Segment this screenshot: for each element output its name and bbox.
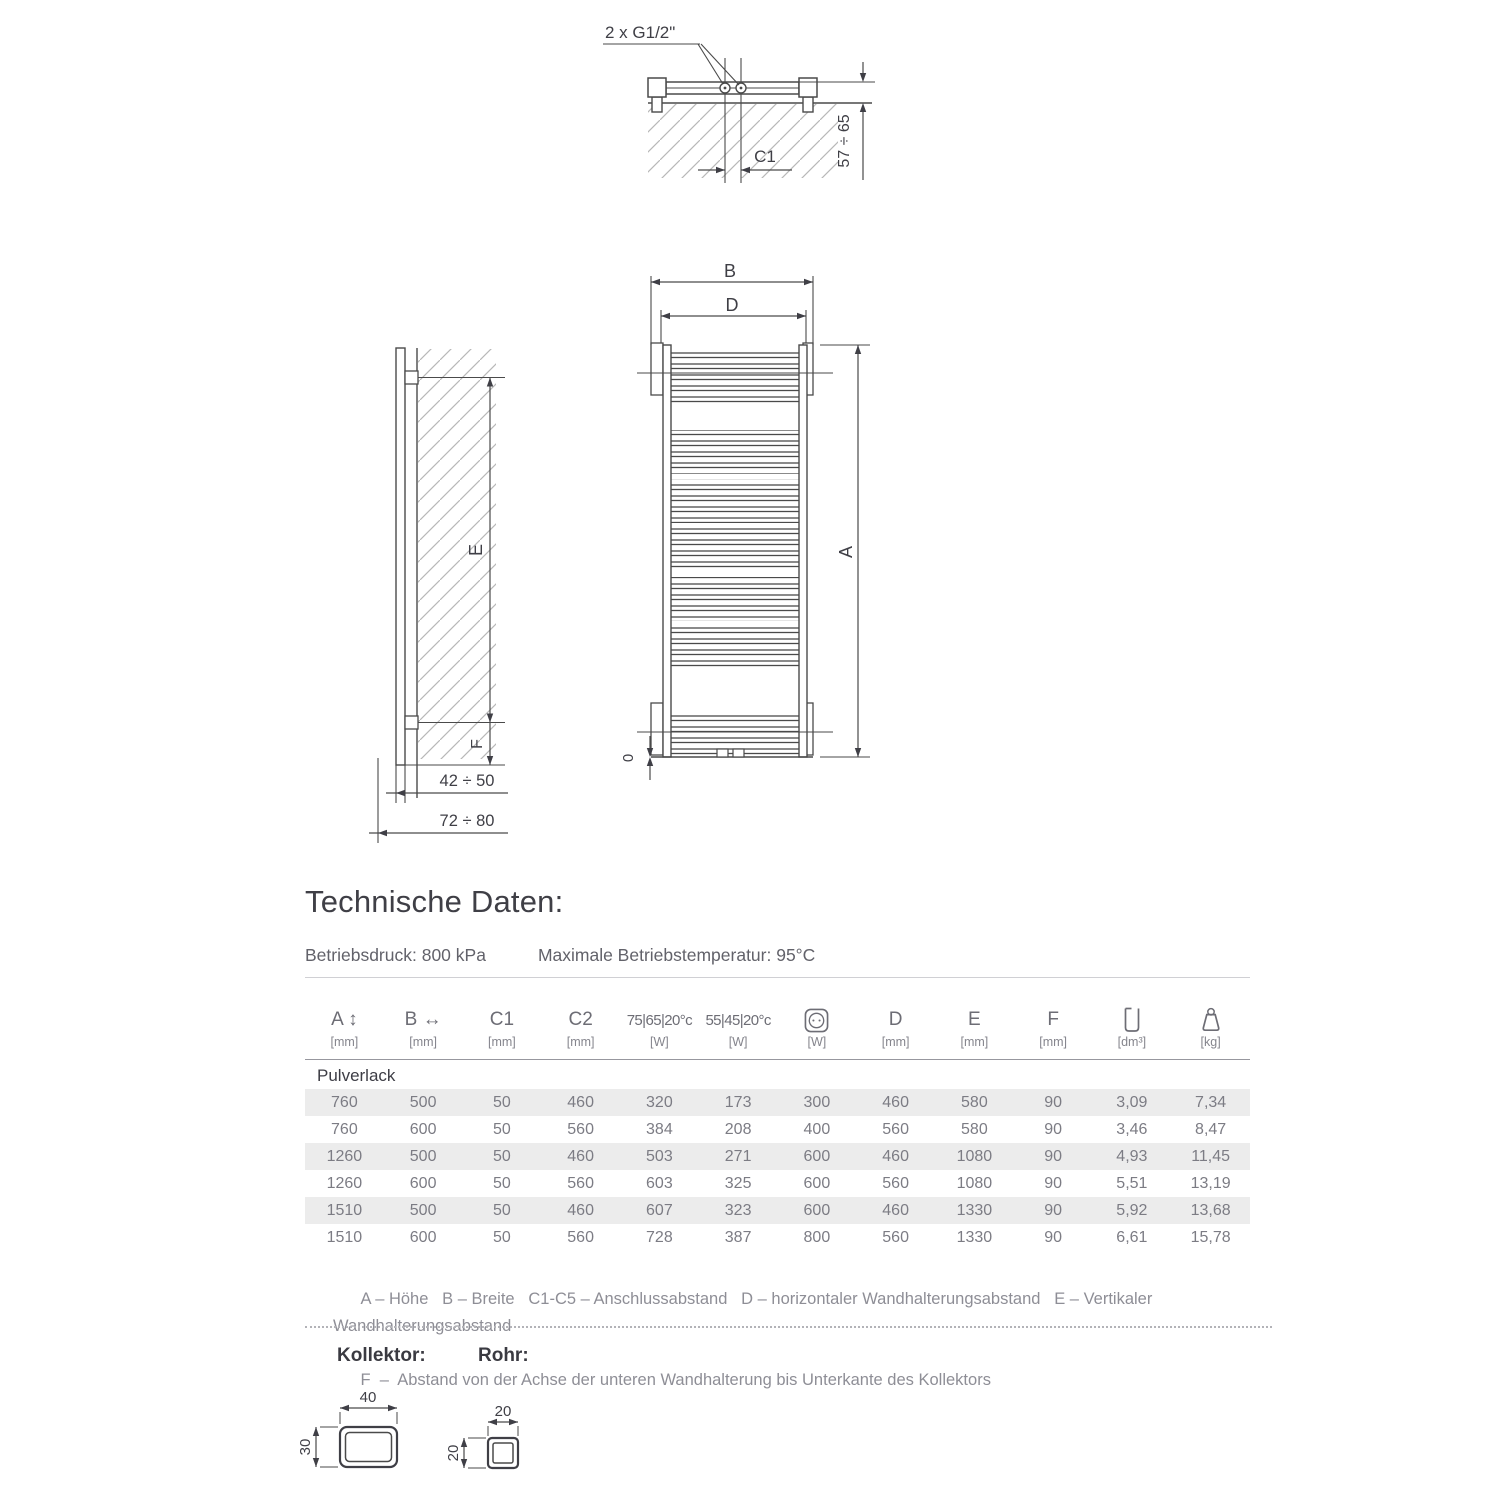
table-cell: 460 (541, 1148, 620, 1166)
datasheet-page: 2 x G1/2" C1 57 ÷ 65 (0, 0, 1500, 1500)
table-cell: 500 (384, 1094, 463, 1112)
table-cell: 460 (856, 1202, 935, 1220)
table-cell: 503 (620, 1148, 699, 1166)
table-cell: 384 (620, 1121, 699, 1139)
table-header-row: A ↕ [mm] B ↔ [mm] C1 [mm] C2 [mm] 75|65|… (305, 995, 1250, 1059)
table-cell: 600 (778, 1175, 857, 1193)
finish-group-label: Pulverlack (305, 1060, 1250, 1089)
table-cell: 1260 (305, 1148, 384, 1166)
table-cell: 760 (305, 1121, 384, 1139)
table-cell: 208 (699, 1121, 778, 1139)
c1-dim-label: C1 (754, 147, 776, 166)
unit-label: [kg] (1171, 1035, 1250, 1049)
col-header-e: E [mm] (935, 1007, 1014, 1049)
table-row: 1510 600 50 560 728 387 800 560 1330 90 … (305, 1224, 1250, 1251)
col-header-d: D [mm] (856, 1007, 935, 1049)
col-header-power-75: 75|65|20°c [W] (620, 1007, 699, 1049)
table-cell: 7,34 (1171, 1094, 1250, 1112)
table-cell: 3,46 (1093, 1121, 1172, 1139)
rohr-profile-drawing: 20 20 (445, 1403, 518, 1468)
table-row: 1260 600 50 560 603 325 600 560 1080 90 … (305, 1170, 1250, 1197)
unit-label: [mm] (305, 1035, 384, 1049)
table-cell: 13,68 (1171, 1202, 1250, 1220)
table-cell: 560 (541, 1121, 620, 1139)
unit-label: [mm] (463, 1035, 542, 1049)
table-cell: 5,92 (1093, 1202, 1172, 1220)
table-cell: 600 (778, 1202, 857, 1220)
rohr-label: Rohr: (478, 1345, 529, 1367)
connection-size-label: 2 x G1/2" (605, 23, 675, 42)
table-row: 760 500 50 460 320 173 300 460 580 90 3,… (305, 1089, 1250, 1116)
col-header-electric-power: [W] (778, 1007, 857, 1049)
depth-dim2-label: 72 ÷ 80 (440, 812, 495, 830)
table-cell: 607 (620, 1202, 699, 1220)
col-header-f: F [mm] (1014, 1007, 1093, 1049)
width-symbol: B ↔ (384, 1007, 463, 1033)
unit-label: [mm] (384, 1035, 463, 1049)
table-cell: 500 (384, 1202, 463, 1220)
max-temperature: Maximale Betriebstemperatur: 95°C (538, 945, 815, 966)
temp-55-45-20-label: 55|45|20°c (699, 1007, 778, 1033)
rohr-height-label: 20 (445, 1445, 462, 1462)
power-socket-icon (778, 1007, 857, 1033)
col-header-height: A ↕ [mm] (305, 1007, 384, 1049)
technical-data-table: A ↕ [mm] B ↔ [mm] C1 [mm] C2 [mm] 75|65|… (305, 995, 1250, 1421)
col-header-weight: [kg] (1171, 1007, 1250, 1049)
table-cell: 50 (463, 1121, 542, 1139)
table-row: 1260 500 50 460 503 271 600 460 1080 90 … (305, 1143, 1250, 1170)
operating-pressure: Betriebsdruck: 800 kPa (305, 945, 486, 966)
table-cell: 50 (463, 1094, 542, 1112)
table-cell: 580 (935, 1094, 1014, 1112)
b-dim-label: B (724, 261, 736, 281)
table-cell: 90 (1014, 1094, 1093, 1112)
table-cell: 3,09 (1093, 1094, 1172, 1112)
table-cell: 90 (1014, 1202, 1093, 1220)
table-row: 1510 500 50 460 607 323 600 460 1330 90 … (305, 1197, 1250, 1224)
table-cell: 1080 (935, 1148, 1014, 1166)
zero-dim-label: 0 (620, 754, 637, 762)
table-cell: 90 (1014, 1229, 1093, 1247)
table-cell: 6,61 (1093, 1229, 1172, 1247)
f-symbol: F (1014, 1007, 1093, 1033)
kollektor-profile-drawing: 40 30 (297, 1389, 397, 1467)
unit-label: [dm³] (1093, 1035, 1172, 1049)
c2-symbol: C2 (541, 1007, 620, 1033)
table-cell: 460 (856, 1148, 935, 1166)
table-cell: 600 (384, 1121, 463, 1139)
table-cell: 460 (541, 1094, 620, 1112)
kollektor-label: Kollektor: (337, 1345, 426, 1367)
table-cell: 1330 (935, 1229, 1014, 1247)
table-cell: 800 (778, 1229, 857, 1247)
side-view-drawing: E F 42 ÷ 50 72 ÷ 80 (369, 348, 508, 843)
table-cell: 600 (384, 1229, 463, 1247)
table-cell: 50 (463, 1148, 542, 1166)
dotted-divider (305, 1326, 1272, 1328)
table-cell: 50 (463, 1202, 542, 1220)
weight-icon (1171, 1007, 1250, 1033)
divider (305, 977, 1250, 978)
table-cell: 90 (1014, 1121, 1093, 1139)
table-cell: 90 (1014, 1148, 1093, 1166)
table-cell: 50 (463, 1229, 542, 1247)
table-cell: 1510 (305, 1229, 384, 1247)
legend-line-1: A – Höhe B – Breite C1-C5 – Anschlussabs… (333, 1290, 1157, 1335)
table-cell: 560 (856, 1175, 935, 1193)
table-row: 760 600 50 560 384 208 400 560 580 90 3,… (305, 1116, 1250, 1143)
kollektor-height-label: 30 (297, 1439, 314, 1456)
d-symbol: D (856, 1007, 935, 1033)
operating-specs: Betriebsdruck: 800 kPa Maximale Betriebs… (305, 945, 815, 966)
table-cell: 603 (620, 1175, 699, 1193)
unit-label: [mm] (935, 1035, 1014, 1049)
unit-label: [W] (699, 1035, 778, 1049)
table-cell: 560 (856, 1121, 935, 1139)
table-cell: 15,78 (1171, 1229, 1250, 1247)
table-cell: 500 (384, 1148, 463, 1166)
table-cell: 600 (778, 1148, 857, 1166)
table-cell: 173 (699, 1094, 778, 1112)
table-cell: 5,51 (1093, 1175, 1172, 1193)
wall-distance-label: 57 ÷ 65 (836, 114, 853, 167)
e-symbol: E (935, 1007, 1014, 1033)
kollektor-width-label: 40 (360, 1389, 377, 1406)
table-cell: 460 (856, 1094, 935, 1112)
table-cell: 1260 (305, 1175, 384, 1193)
table-cell: 1330 (935, 1202, 1014, 1220)
table-cell: 580 (935, 1121, 1014, 1139)
table-cell: 760 (305, 1094, 384, 1112)
depth-dim1-label: 42 ÷ 50 (440, 772, 495, 790)
col-header-c2: C2 [mm] (541, 1007, 620, 1049)
profile-drawings: 40 30 20 20 (280, 1380, 550, 1490)
col-header-width: B ↔ [mm] (384, 1007, 463, 1049)
table-cell: 11,45 (1171, 1148, 1250, 1166)
unit-label: [mm] (541, 1035, 620, 1049)
f-dim-label: F (469, 739, 486, 749)
table-cell: 13,19 (1171, 1175, 1250, 1193)
height-symbol: A ↕ (305, 1007, 384, 1033)
top-view-drawing: 2 x G1/2" C1 57 ÷ 65 (603, 23, 875, 183)
unit-label: [mm] (1014, 1035, 1093, 1049)
table-cell: 460 (541, 1202, 620, 1220)
c1-symbol: C1 (463, 1007, 542, 1033)
table-cell: 387 (699, 1229, 778, 1247)
table-cell: 560 (856, 1229, 935, 1247)
temp-75-65-20-label: 75|65|20°c (620, 1007, 699, 1033)
unit-label: [W] (778, 1035, 857, 1049)
table-cell: 325 (699, 1175, 778, 1193)
front-view-drawing: B D A 0 (620, 261, 870, 780)
table-cell: 1510 (305, 1202, 384, 1220)
table-cell: 728 (620, 1229, 699, 1247)
table-cell: 8,47 (1171, 1121, 1250, 1139)
d-dim-label: D (726, 295, 739, 315)
table-cell: 320 (620, 1094, 699, 1112)
table-cell: 560 (541, 1175, 620, 1193)
table-cell: 90 (1014, 1175, 1093, 1193)
unit-label: [mm] (856, 1035, 935, 1049)
col-header-c1: C1 [mm] (463, 1007, 542, 1049)
table-cell: 50 (463, 1175, 542, 1193)
technical-drawing: 2 x G1/2" C1 57 ÷ 65 (0, 0, 1500, 870)
table-cell: 323 (699, 1202, 778, 1220)
table-cell: 600 (384, 1175, 463, 1193)
table-cell: 1080 (935, 1175, 1014, 1193)
e-dim-label: E (466, 544, 486, 556)
table-cell: 560 (541, 1229, 620, 1247)
table-cell: 400 (778, 1121, 857, 1139)
table-cell: 271 (699, 1148, 778, 1166)
col-header-power-55: 55|45|20°c [W] (699, 1007, 778, 1049)
page-title: Technische Daten: (305, 884, 563, 920)
table-cell: 4,93 (1093, 1148, 1172, 1166)
table-cell: 300 (778, 1094, 857, 1112)
a-dim-label: A (836, 546, 856, 558)
unit-label: [W] (620, 1035, 699, 1049)
rohr-width-label: 20 (495, 1403, 512, 1420)
water-content-icon (1093, 1007, 1172, 1033)
col-header-water-content: [dm³] (1093, 1007, 1172, 1049)
